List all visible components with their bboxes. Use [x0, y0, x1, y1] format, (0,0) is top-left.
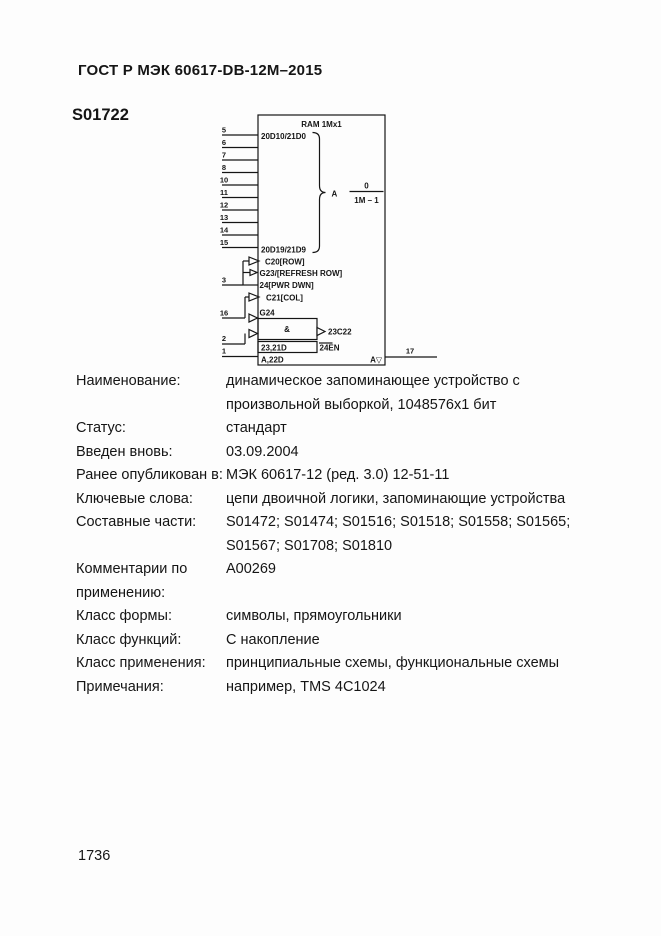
col-control-label: C21[COL] [266, 294, 303, 303]
pin-number: 10 [220, 176, 228, 185]
property-label: Примечания: [76, 676, 226, 700]
property-value: символы, прямоугольники [226, 605, 582, 629]
property-value: A00269 [226, 558, 582, 605]
property-value: S01472; S01474; S01516; S01518; S01558; … [226, 511, 582, 558]
property-label: Составные части: [76, 511, 226, 558]
property-row: Наименование: динамическое запоминающее … [76, 370, 586, 417]
page-number: 1736 [78, 848, 110, 864]
property-label: Класс функций: [76, 629, 226, 653]
pin-number: 15 [220, 238, 228, 247]
property-row: Класс применения: принципиальные схемы, … [76, 652, 586, 676]
power-down-label: 24[PWR DWN] [260, 281, 315, 290]
g24-label: G24 [260, 309, 276, 318]
pin-number: 16 [220, 309, 228, 318]
output-arrow-icon [317, 328, 325, 336]
property-label: Наименование: [76, 370, 226, 417]
data-input-label: A,22D [261, 356, 284, 365]
dram-symbol-diagram: RAM 1Mx1 5 6 7 8 10 11 12 13 14 15 20D10… [200, 105, 450, 370]
and-symbol: & [284, 325, 290, 334]
properties-table: Наименование: динамическое запоминающее … [76, 370, 586, 699]
data-output-label: A▽ [370, 356, 383, 365]
property-value: например, TMS 4C1024 [226, 676, 582, 700]
pin-number: 17 [406, 347, 414, 356]
pin-number: 7 [222, 151, 226, 160]
refresh-row-label: G23/[REFRESH ROW] [260, 269, 343, 278]
and-output-label: 23C22 [328, 328, 352, 337]
property-label: Ключевые слова: [76, 488, 226, 512]
address-brace [313, 133, 326, 253]
standard-title: ГОСТ Р МЭК 60617-DB-12M–2015 [78, 62, 322, 79]
pin-number: 2 [222, 334, 226, 343]
property-row: Составные части: S01472; S01474; S01516;… [76, 511, 586, 558]
property-row: Класс функций: С накопление [76, 629, 586, 653]
property-value: С накопление [226, 629, 582, 653]
address-top-label: 20D10/21D0 [261, 132, 306, 141]
property-value: динамическое запоминающее устройство с п… [226, 370, 582, 417]
property-label: Класс применения: [76, 652, 226, 676]
dynamic-input-icon [250, 270, 257, 276]
address-bottom-label: 20D19/21D9 [261, 246, 306, 255]
dynamic-input-icon [249, 314, 258, 322]
pin-number: 12 [220, 201, 228, 210]
pin-number: 11 [220, 188, 228, 197]
diagram-title: RAM 1Mx1 [301, 120, 342, 129]
property-value: 03.09.2004 [226, 441, 582, 465]
property-label: Класс формы: [76, 605, 226, 629]
symbol-id: S01722 [72, 106, 129, 125]
pin-number: 3 [222, 276, 226, 285]
pin-number: 13 [220, 213, 228, 222]
property-label: Ранее опубликован в: [76, 464, 226, 488]
property-value: цепи двоичной логики, запоминающие устро… [226, 488, 582, 512]
pin-number: 8 [222, 163, 226, 172]
property-row: Ключевые слова: цепи двоичной логики, за… [76, 488, 586, 512]
row-control-label: C20[ROW] [265, 258, 305, 267]
property-row: Класс формы: символы, прямоугольники [76, 605, 586, 629]
dynamic-input-icon [249, 330, 258, 338]
property-row: Ранее опубликован в: МЭК 60617-12 (ред. … [76, 464, 586, 488]
property-row: Введен вновь: 03.09.2004 [76, 441, 586, 465]
property-row: Комментарии по применению: A00269 [76, 558, 586, 605]
address-group-letter: A [332, 190, 338, 199]
property-label: Статус: [76, 417, 226, 441]
pin-number: 14 [220, 226, 229, 235]
property-value: принципиальные схемы, функциональные схе… [226, 652, 582, 676]
pin-number: 5 [222, 126, 226, 135]
address-range-bottom: 1M – 1 [354, 196, 379, 205]
property-row: Примечания: например, TMS 4C1024 [76, 676, 586, 700]
property-value: стандарт [226, 417, 582, 441]
address-range-top: 0 [364, 182, 369, 191]
pin-number: 1 [222, 347, 226, 356]
enable-label: 24EN [320, 344, 340, 353]
write-label: 23,21D [261, 344, 287, 353]
pin-number: 6 [222, 138, 226, 147]
property-value: МЭК 60617-12 (ред. 3.0) 12-51-11 [226, 464, 582, 488]
property-row: Статус: стандарт [76, 417, 586, 441]
property-label: Введен вновь: [76, 441, 226, 465]
property-label: Комментарии по применению: [76, 558, 226, 605]
